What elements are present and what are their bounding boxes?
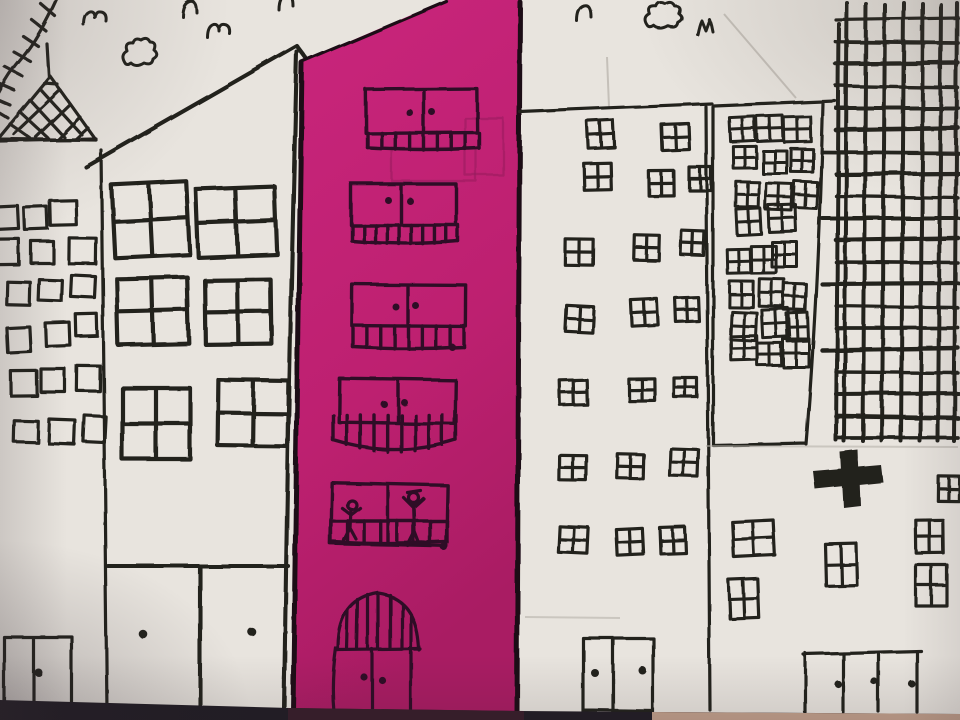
- door-frame: [108, 566, 288, 712]
- grid-line: [920, 4, 923, 441]
- mid-tower-windows: [558, 120, 711, 555]
- cloud: [123, 38, 157, 65]
- door-handle: [139, 630, 148, 639]
- crease: [607, 57, 609, 107]
- grid-line: [836, 63, 958, 64]
- gable-windows: [111, 181, 288, 459]
- window: [116, 277, 189, 345]
- mid-tower-door: [583, 638, 653, 712]
- door-frame: [803, 651, 921, 654]
- right-edge: [706, 107, 710, 710]
- window-dot: [407, 198, 414, 205]
- window: [938, 476, 959, 501]
- window: [0, 239, 19, 265]
- pencil-line: [706, 446, 958, 447]
- window-dot: [401, 399, 408, 406]
- bird-n: [577, 6, 591, 21]
- grid-line: [938, 5, 941, 441]
- building-gable-house: [86, 46, 306, 712]
- door-handle: [34, 668, 42, 676]
- bird-M: [697, 19, 712, 34]
- window: [783, 339, 809, 367]
- grid-line: [822, 348, 958, 350]
- window: [732, 520, 775, 557]
- window: [729, 116, 755, 141]
- window: [39, 280, 63, 302]
- window: [0, 205, 19, 229]
- window: [50, 200, 77, 226]
- left-tower-windows: [0, 200, 106, 445]
- building-corner-block: [728, 450, 959, 712]
- window: [560, 380, 588, 406]
- grid-line: [844, 3, 847, 441]
- left-tower-door: [4, 637, 72, 707]
- window: [77, 366, 100, 391]
- grid-lines: [822, 3, 958, 441]
- roofline: [0, 139, 96, 141]
- window: [757, 116, 784, 142]
- window: [111, 181, 189, 258]
- gable-doors: [108, 566, 288, 712]
- door-handle: [834, 680, 841, 687]
- grid-line: [954, 3, 957, 441]
- bird-n: [279, 0, 293, 10]
- window: [728, 578, 758, 618]
- window-dot: [385, 197, 392, 204]
- grid-line: [836, 262, 958, 263]
- window: [736, 182, 760, 208]
- dense-tower-windows: [727, 116, 818, 367]
- grid-line: [836, 42, 958, 43]
- pencil-line: [525, 617, 620, 618]
- grid-line: [863, 4, 866, 441]
- grid-line: [836, 86, 958, 88]
- grid-line: [822, 283, 958, 284]
- roofline: [520, 104, 712, 112]
- window: [649, 171, 674, 196]
- window-dot: [429, 109, 436, 116]
- grid-line: [836, 18, 958, 20]
- grid-line: [836, 196, 958, 198]
- window: [757, 343, 781, 365]
- building-left-tower: [0, 44, 107, 712]
- corner-block-door: [803, 651, 921, 712]
- window-dot: [393, 304, 400, 311]
- lattice-spire: [0, 44, 96, 140]
- window: [916, 520, 943, 553]
- balcony-rail: [368, 148, 479, 150]
- window: [759, 279, 785, 307]
- balcony-rail: [353, 347, 464, 349]
- grid-line: [836, 393, 958, 394]
- door-handle: [591, 669, 599, 677]
- peaked-roof: [86, 46, 306, 167]
- right-outline: [517, 2, 520, 712]
- window: [916, 565, 947, 606]
- window: [6, 326, 30, 352]
- window: [14, 421, 39, 443]
- window: [763, 151, 787, 174]
- window-dot: [413, 303, 420, 310]
- door-handle: [248, 628, 257, 637]
- door-handle: [908, 680, 915, 687]
- window: [41, 369, 65, 392]
- window: [793, 181, 817, 208]
- window: [825, 544, 857, 587]
- photo-of-child-city-drawing: Child's felt-tip marker drawing of a cit…: [0, 0, 960, 720]
- window: [681, 231, 705, 256]
- window: [24, 207, 48, 230]
- balcony-rail: [331, 542, 447, 544]
- window: [196, 187, 277, 258]
- window: [46, 323, 71, 347]
- window: [71, 275, 96, 297]
- window: [587, 120, 614, 148]
- window: [11, 371, 37, 396]
- window: [736, 208, 761, 235]
- window: [617, 454, 644, 479]
- door-handle: [871, 678, 878, 685]
- grid-line: [836, 173, 958, 174]
- door-handle: [378, 676, 385, 683]
- window: [660, 527, 686, 554]
- window: [69, 238, 96, 264]
- window: [630, 298, 657, 325]
- window: [733, 146, 756, 168]
- door-handle: [360, 673, 367, 680]
- grid-line: [836, 416, 958, 418]
- window: [791, 149, 813, 172]
- bird-n: [182, 1, 196, 16]
- window-dot: [441, 544, 448, 551]
- window: [76, 314, 98, 337]
- magenta-tower-fill: [293, 0, 521, 712]
- crease: [724, 14, 796, 98]
- window: [784, 284, 807, 311]
- door-handle: [638, 666, 646, 674]
- building-mid-tower: [520, 104, 712, 712]
- window: [729, 281, 753, 307]
- grid-line: [836, 128, 958, 130]
- window: [565, 305, 593, 332]
- grid-line: [836, 306, 958, 308]
- window: [727, 249, 751, 274]
- cloud: [646, 2, 682, 28]
- bird-m: [84, 12, 106, 25]
- cross-ornament: [813, 450, 883, 507]
- window: [31, 241, 53, 263]
- window: [122, 388, 190, 459]
- window: [670, 448, 699, 476]
- grid-line: [836, 238, 958, 240]
- building-grid-tower: [822, 3, 958, 441]
- window: [634, 235, 660, 261]
- window: [565, 239, 593, 265]
- window: [616, 528, 643, 555]
- window: [629, 379, 655, 401]
- window: [584, 163, 612, 191]
- window: [662, 124, 690, 151]
- window: [205, 280, 272, 345]
- grid-line: [901, 3, 904, 441]
- window: [218, 380, 289, 447]
- grid-line: [882, 5, 885, 441]
- bird-m: [207, 24, 229, 37]
- building-dense-tower: [713, 101, 835, 445]
- window-dot: [381, 401, 388, 408]
- drawing-canvas: [0, 0, 960, 720]
- window: [559, 455, 586, 480]
- window-dot: [407, 110, 414, 117]
- window: [7, 282, 31, 306]
- grid-line: [836, 372, 958, 373]
- window: [49, 420, 76, 445]
- window: [674, 378, 697, 397]
- grid-line: [822, 152, 958, 153]
- window: [558, 526, 588, 553]
- paper-creases: [607, 14, 796, 107]
- window: [784, 117, 812, 143]
- window: [676, 298, 700, 323]
